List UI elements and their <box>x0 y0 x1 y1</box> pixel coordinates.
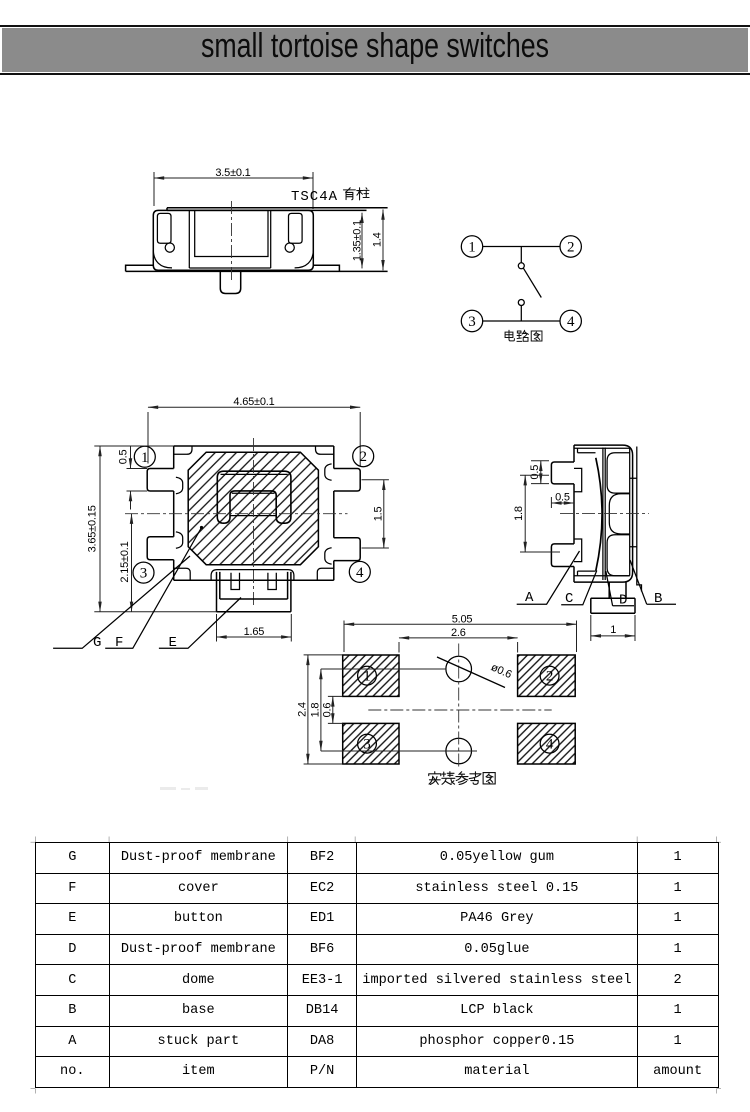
svg-text:B: B <box>654 591 662 607</box>
svg-text:1: 1 <box>610 624 616 636</box>
svg-text:3: 3 <box>468 314 476 330</box>
svg-text:3.5±0.1: 3.5±0.1 <box>215 167 250 179</box>
svg-text:4: 4 <box>567 314 575 330</box>
svg-text:2: 2 <box>359 449 367 465</box>
svg-text:3: 3 <box>363 736 371 752</box>
svg-text:D: D <box>619 593 627 609</box>
svg-text:A: A <box>525 590 534 606</box>
svg-text:TSC4A: TSC4A <box>291 189 338 205</box>
svg-text:1: 1 <box>141 450 149 466</box>
svg-text:C: C <box>565 591 573 607</box>
svg-text:1.8: 1.8 <box>309 703 321 718</box>
svg-text:E: E <box>169 635 177 651</box>
svg-text:1.5: 1.5 <box>372 506 384 521</box>
svg-text:0.5: 0.5 <box>555 492 570 504</box>
svg-text:5.05: 5.05 <box>452 613 473 625</box>
svg-text:1.4: 1.4 <box>372 232 384 247</box>
svg-text:2: 2 <box>567 240 575 256</box>
svg-text:4.65±0.1: 4.65±0.1 <box>233 396 274 408</box>
svg-text:2.6: 2.6 <box>451 627 466 639</box>
svg-text:4: 4 <box>546 736 554 752</box>
svg-text:ø0.6: ø0.6 <box>489 661 513 681</box>
svg-text:2.4: 2.4 <box>296 702 308 717</box>
svg-text:4: 4 <box>356 565 364 581</box>
svg-text:3.65±0.15: 3.65±0.15 <box>87 505 99 552</box>
svg-text:0.5: 0.5 <box>529 465 541 480</box>
svg-text:0.5: 0.5 <box>118 449 130 464</box>
svg-text:1.65: 1.65 <box>244 626 265 638</box>
svg-text:2: 2 <box>546 668 554 684</box>
svg-text:0.6: 0.6 <box>321 703 333 718</box>
svg-text:3: 3 <box>140 566 148 582</box>
svg-text:2.15±0.1: 2.15±0.1 <box>119 541 131 582</box>
svg-text:1: 1 <box>363 668 371 684</box>
svg-text:G: G <box>93 635 101 651</box>
svg-text:1: 1 <box>468 240 476 256</box>
svg-text:1.8: 1.8 <box>513 506 525 521</box>
svg-text:1.35±0.1: 1.35±0.1 <box>352 220 364 261</box>
svg-text:F: F <box>115 635 123 651</box>
